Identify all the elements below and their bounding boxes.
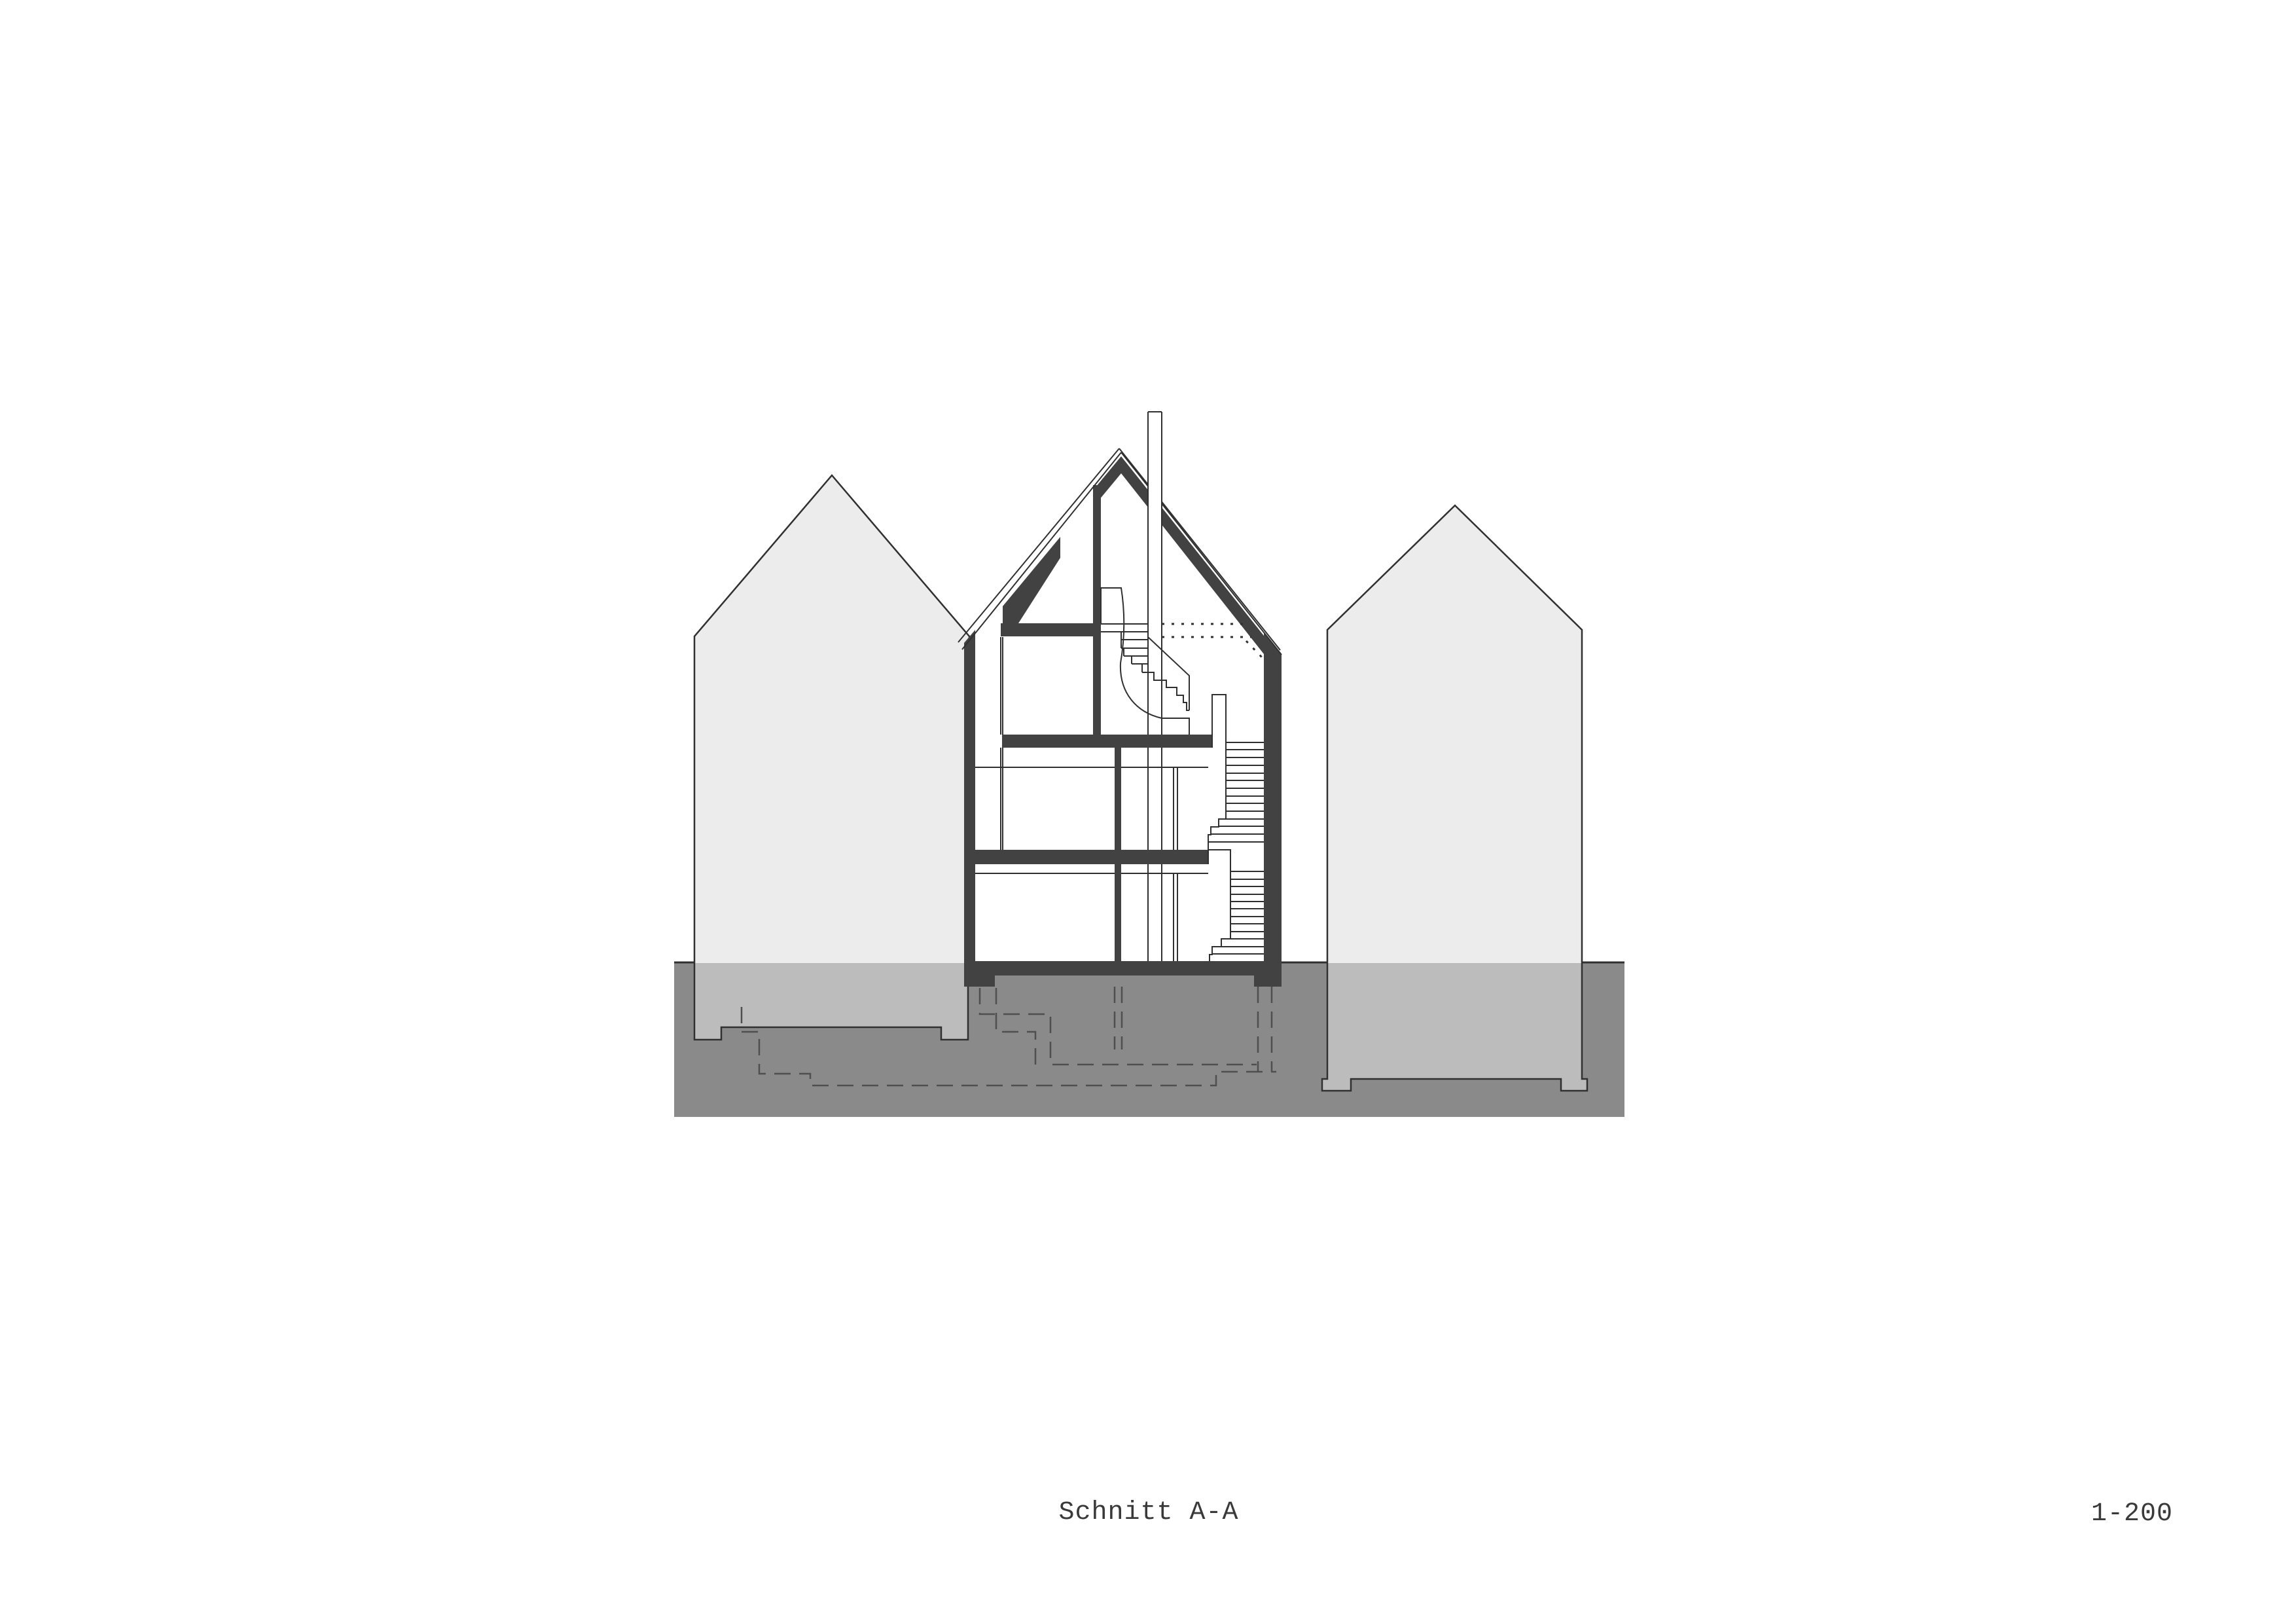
drawing-scale: 1-200 <box>2091 1499 2173 1529</box>
drawing-title: Schnitt A-A <box>1058 1498 1238 1527</box>
stair-flight-upper <box>1208 695 1264 864</box>
right-neighbor-foundation <box>1322 962 1587 1091</box>
drawing-sheet: Schnitt A-A 1-200 <box>0 0 2296 1623</box>
section-drawing-canvas: Schnitt A-A 1-200 <box>0 0 2296 1623</box>
chimney-shaft <box>1148 412 1162 961</box>
sheet-labels: Schnitt A-A 1-200 <box>1058 1498 2173 1529</box>
stair-flight-lower <box>1210 864 1264 961</box>
upper-winder-stair <box>1101 588 1189 735</box>
house-cut-structure <box>964 456 1282 987</box>
interior-thin-lines <box>975 637 1208 961</box>
left-neighbor-building <box>694 475 969 963</box>
right-neighbor-building <box>1327 505 1582 963</box>
